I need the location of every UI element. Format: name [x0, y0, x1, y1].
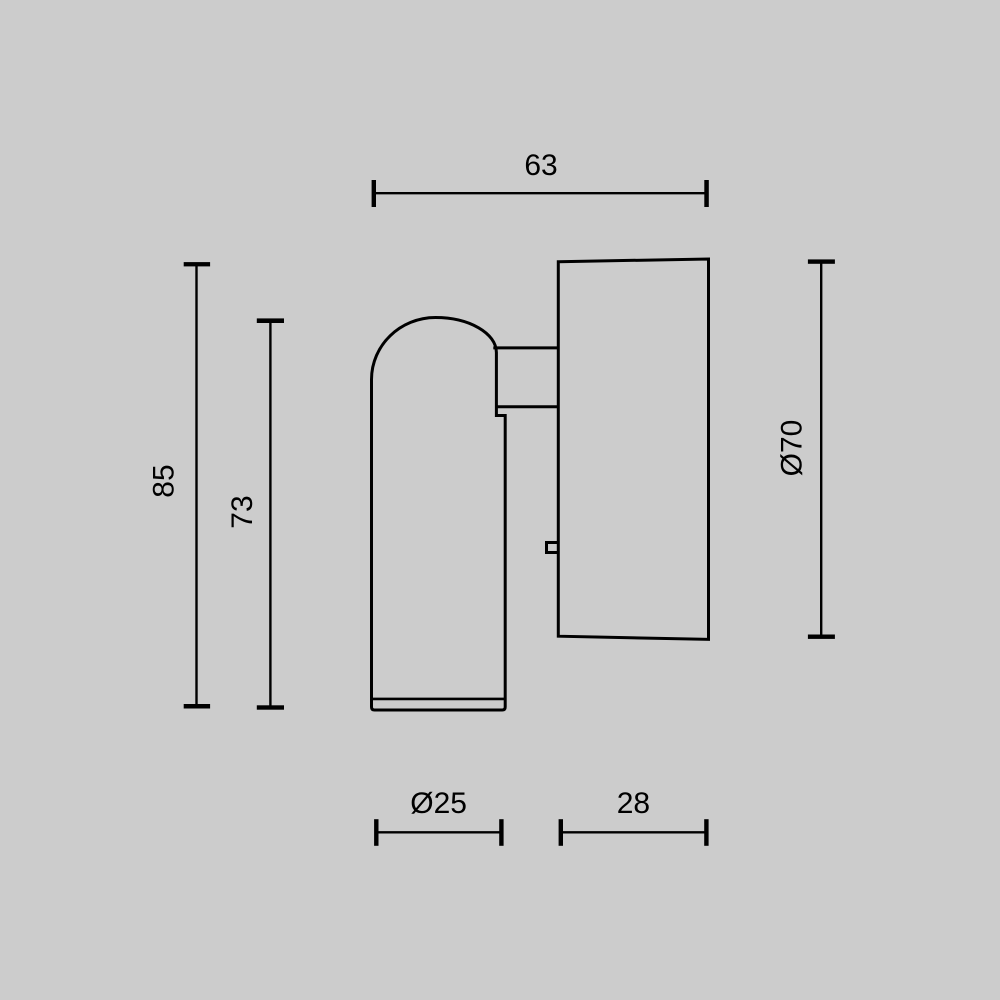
svg-text:28: 28: [617, 787, 650, 820]
svg-text:73: 73: [226, 495, 259, 528]
svg-text:Ø70: Ø70: [775, 420, 808, 477]
svg-text:63: 63: [524, 149, 557, 182]
svg-text:Ø25: Ø25: [410, 787, 467, 820]
svg-text:85: 85: [148, 464, 181, 497]
